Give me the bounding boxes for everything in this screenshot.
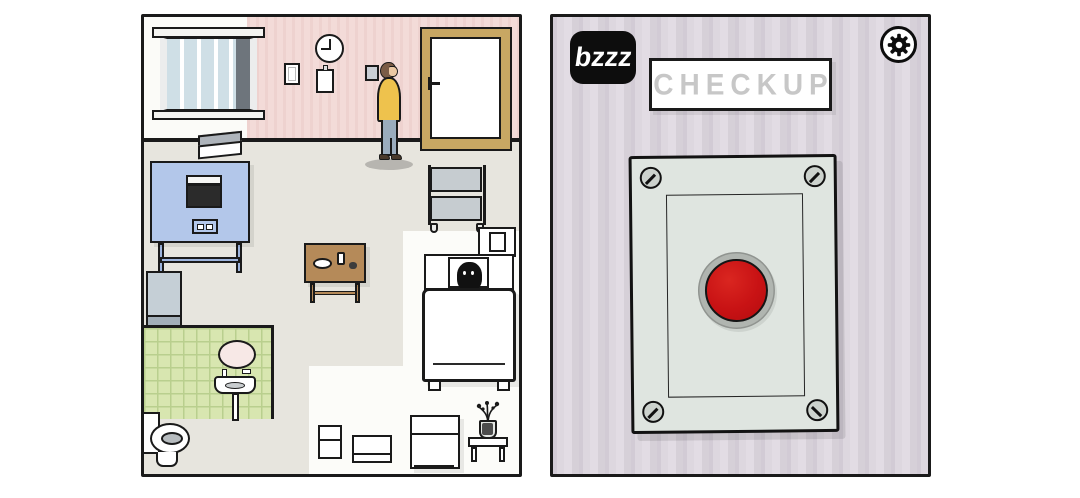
nightstand (478, 227, 516, 257)
window-curtain-strip (236, 39, 250, 109)
bed-blanket (422, 288, 516, 382)
screw-icon (804, 165, 826, 187)
checkup-sign: CHECKUP (649, 58, 832, 111)
plant-side-table (468, 427, 508, 463)
door-handle (428, 77, 432, 90)
window-glass (160, 37, 257, 111)
interaction-panel: bzzz CHECKUP (550, 14, 931, 477)
machine-buttons (192, 219, 218, 234)
button-ring (698, 252, 776, 330)
white-door (420, 27, 512, 151)
picture-frame (284, 63, 300, 85)
room-overview-panel (141, 14, 522, 477)
plate (313, 258, 332, 269)
settings-button[interactable] (880, 26, 917, 63)
red-button-mount-panel (629, 154, 840, 434)
pillow (448, 257, 489, 288)
game-stage: bzzz CHECKUP (0, 0, 1080, 498)
wall-clock-icon (315, 34, 344, 63)
wall-note (316, 69, 334, 93)
bzzz-label: bzzz (572, 42, 633, 73)
sink-basin (214, 376, 256, 394)
bathroom-tiled-area (144, 325, 274, 419)
standing-person (370, 62, 410, 172)
window (157, 27, 260, 120)
food-item (349, 262, 357, 269)
bed (422, 254, 516, 394)
sleeping-figure (457, 262, 482, 291)
red-checkup-button[interactable] (705, 259, 769, 323)
wooden-table (304, 243, 366, 305)
small-box (318, 425, 342, 459)
screw-icon (640, 167, 662, 189)
checkup-label: CHECKUP (647, 68, 833, 102)
cup (337, 252, 345, 265)
gear-icon (886, 32, 912, 58)
person-sweater (377, 77, 401, 122)
bzzz-buzzer-badge: bzzz (570, 31, 636, 84)
book (489, 232, 506, 252)
machine-body (150, 161, 250, 243)
person-legs (381, 120, 398, 156)
machine-screen (186, 184, 222, 208)
screw-icon (642, 401, 664, 423)
large-cabinet-box (410, 415, 460, 469)
person-face (389, 66, 398, 77)
bath-mat (218, 340, 256, 369)
toilet (144, 409, 192, 473)
gray-cabinet (146, 271, 182, 333)
screw-icon (806, 399, 828, 421)
bed-headboard (424, 254, 514, 290)
faucet (242, 369, 251, 374)
flower-pot (479, 420, 497, 439)
person-shadow (365, 159, 413, 170)
medical-machine (150, 145, 250, 273)
medium-box (352, 435, 392, 463)
